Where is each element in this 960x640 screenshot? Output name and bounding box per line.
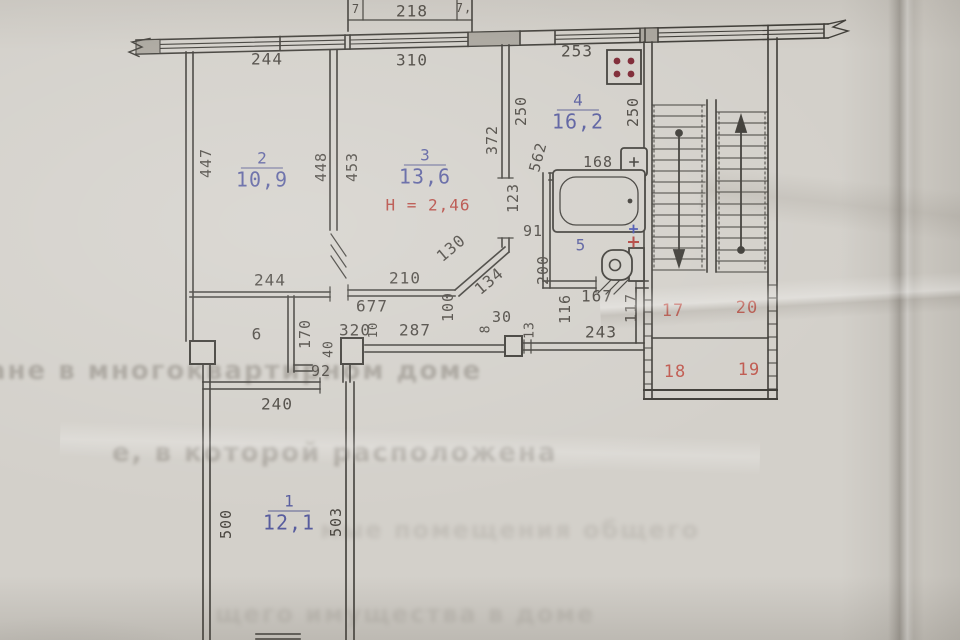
dim-13: 13 xyxy=(523,321,538,339)
dim-503: 503 xyxy=(327,507,345,537)
room-3-label: 3 13,6 xyxy=(399,148,451,187)
top-exterior-wall xyxy=(129,20,848,57)
wall-break-right xyxy=(828,20,848,38)
stair-mark-18: 18 xyxy=(664,362,686,382)
room-1-label: 1 12,1 xyxy=(263,494,315,533)
dim-balcony-right: 7, xyxy=(456,1,472,15)
dim-200: 200 xyxy=(534,255,552,285)
dim-453: 453 xyxy=(343,152,361,182)
stove-icon xyxy=(607,50,641,84)
dim-210: 210 xyxy=(389,269,421,288)
stair-mark-19: 19 xyxy=(738,360,760,380)
room-2-label: 2 10,9 xyxy=(236,151,288,190)
dim-447: 447 xyxy=(197,148,215,178)
scanned-floor-plan: ане в многоквартирном доме е, в которой … xyxy=(0,0,960,640)
room-3-number: 3 xyxy=(420,148,430,164)
dim-100: 100 xyxy=(439,292,457,322)
floor-plan-linework xyxy=(0,0,960,640)
dim-123: 123 xyxy=(504,183,522,213)
toilet-icon xyxy=(602,248,644,281)
dim-117: 117 xyxy=(622,293,640,323)
dim-167: 167 xyxy=(581,287,613,306)
stair-arrow-up xyxy=(736,116,746,253)
bathtub-icon xyxy=(553,170,645,232)
room-1-area: 12,1 xyxy=(263,513,315,533)
stair-mark-20: 20 xyxy=(736,298,758,318)
dim-240: 240 xyxy=(261,395,293,414)
left-exterior-wall xyxy=(186,52,215,382)
dim-372: 372 xyxy=(483,125,501,155)
dim-677: 677 xyxy=(356,297,388,316)
room-1-number: 1 xyxy=(284,494,294,510)
dim-448: 448 xyxy=(312,152,330,182)
room-2-number: 2 xyxy=(257,151,267,167)
dim-168: 168 xyxy=(583,153,613,171)
dim-244-top: 244 xyxy=(251,50,283,69)
dim-40: 40 xyxy=(322,340,337,358)
dim-243: 243 xyxy=(585,323,617,342)
dim-116: 116 xyxy=(556,294,574,324)
stairwell xyxy=(644,38,777,399)
dim-30: 30 xyxy=(492,308,512,326)
dim-170: 170 xyxy=(296,319,314,349)
dim-10: 10 xyxy=(366,322,380,338)
corridor-column-left xyxy=(341,338,363,364)
dim-250-right: 250 xyxy=(624,97,642,127)
dim-287: 287 xyxy=(399,321,431,340)
plus-marks xyxy=(629,226,638,247)
dim-310: 310 xyxy=(396,51,428,70)
corridor-column-right xyxy=(505,336,522,356)
room-4-area: 16,2 xyxy=(552,112,604,132)
room-4-number: 4 xyxy=(573,93,583,109)
room-4-label: 4 16,2 xyxy=(552,93,604,132)
door-hatch-room2 xyxy=(331,234,346,278)
room-2-area: 10,9 xyxy=(236,170,288,190)
dim-253: 253 xyxy=(561,42,593,61)
stair-arrow-down xyxy=(674,130,684,266)
dim-244-mid: 244 xyxy=(254,271,286,290)
dim-balcony-width: 218 xyxy=(396,2,428,21)
dim-91: 91 xyxy=(523,222,543,240)
room-5-number: 5 xyxy=(576,236,587,255)
room-3-area: 13,6 xyxy=(399,167,451,187)
room-6-number: 6 xyxy=(252,325,263,344)
ceiling-height-note: Н = 2,46 xyxy=(385,196,470,215)
dim-92: 92 xyxy=(311,362,331,380)
dim-500: 500 xyxy=(217,509,235,539)
dim-balcony-left: 7 xyxy=(352,2,360,16)
stair-mark-17: 17 xyxy=(662,301,684,321)
dim-250-left: 250 xyxy=(512,96,530,126)
